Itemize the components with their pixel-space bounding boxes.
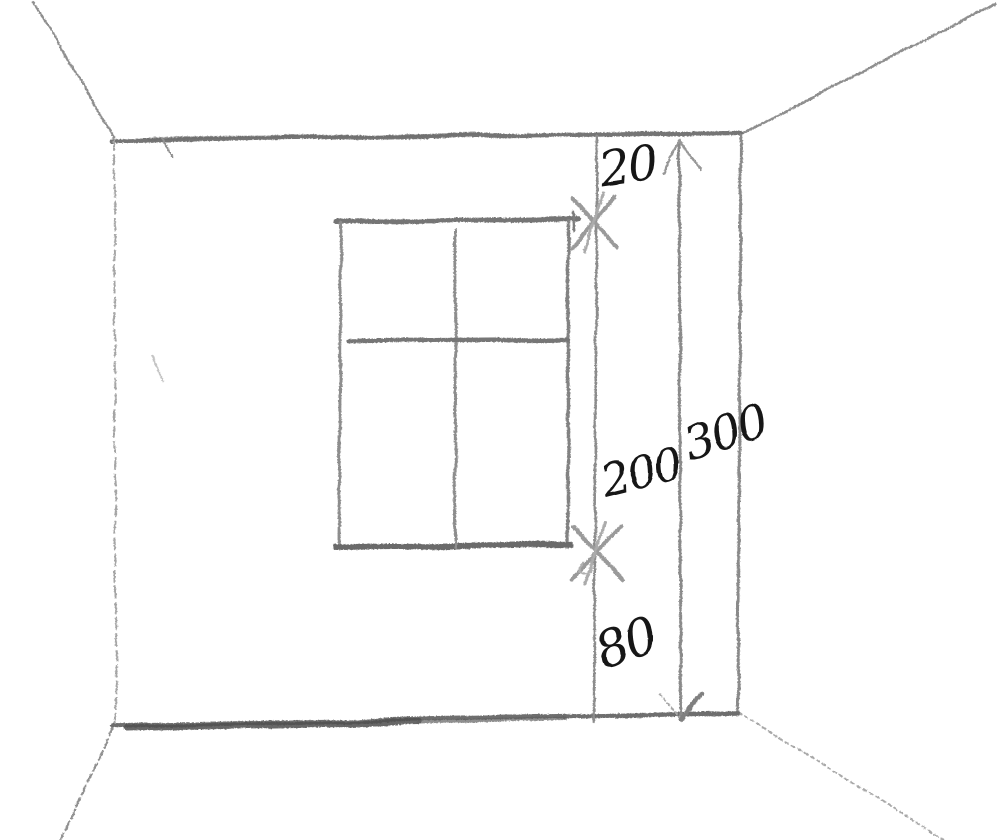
tick-x-top-stroke-3 [584,193,603,251]
corner-diagonal-top-right [741,4,996,134]
dim-label-below-window: 80 [588,606,664,681]
window-crossbar-horizontal [349,339,568,341]
window-frame [335,212,578,549]
corner-diagonal-bottom-right [739,712,943,840]
arrowhead-up-right-wing [679,140,701,171]
dim-label-window-height: 200 [595,437,688,508]
arrowhead-up-left-wing [663,140,679,174]
dim-label-above-window: 20 [595,134,662,198]
arrowhead-up [663,140,701,174]
tick-x-window-bottom [572,521,623,584]
sketch-sheet: 20 200 80 300 [0,0,1000,840]
window-left-edge [339,223,341,549]
room-sketch: 20 200 80 300 [0,0,1000,840]
window-bottom-edge [335,545,571,547]
window-top-edge [336,219,578,222]
corner-diagonal-bottom-left [60,728,114,840]
window-mullion-vertical [455,231,456,547]
pencil-linework [34,2,996,840]
window-top-edge-end-tick [573,212,574,231]
dim-label-wall-total: 300 [677,394,775,473]
tick-x-window-top [572,193,617,251]
pencil-smudge [152,356,163,381]
corner-diagonal-top-left [34,2,114,137]
left-wall-corner-line [114,138,116,727]
